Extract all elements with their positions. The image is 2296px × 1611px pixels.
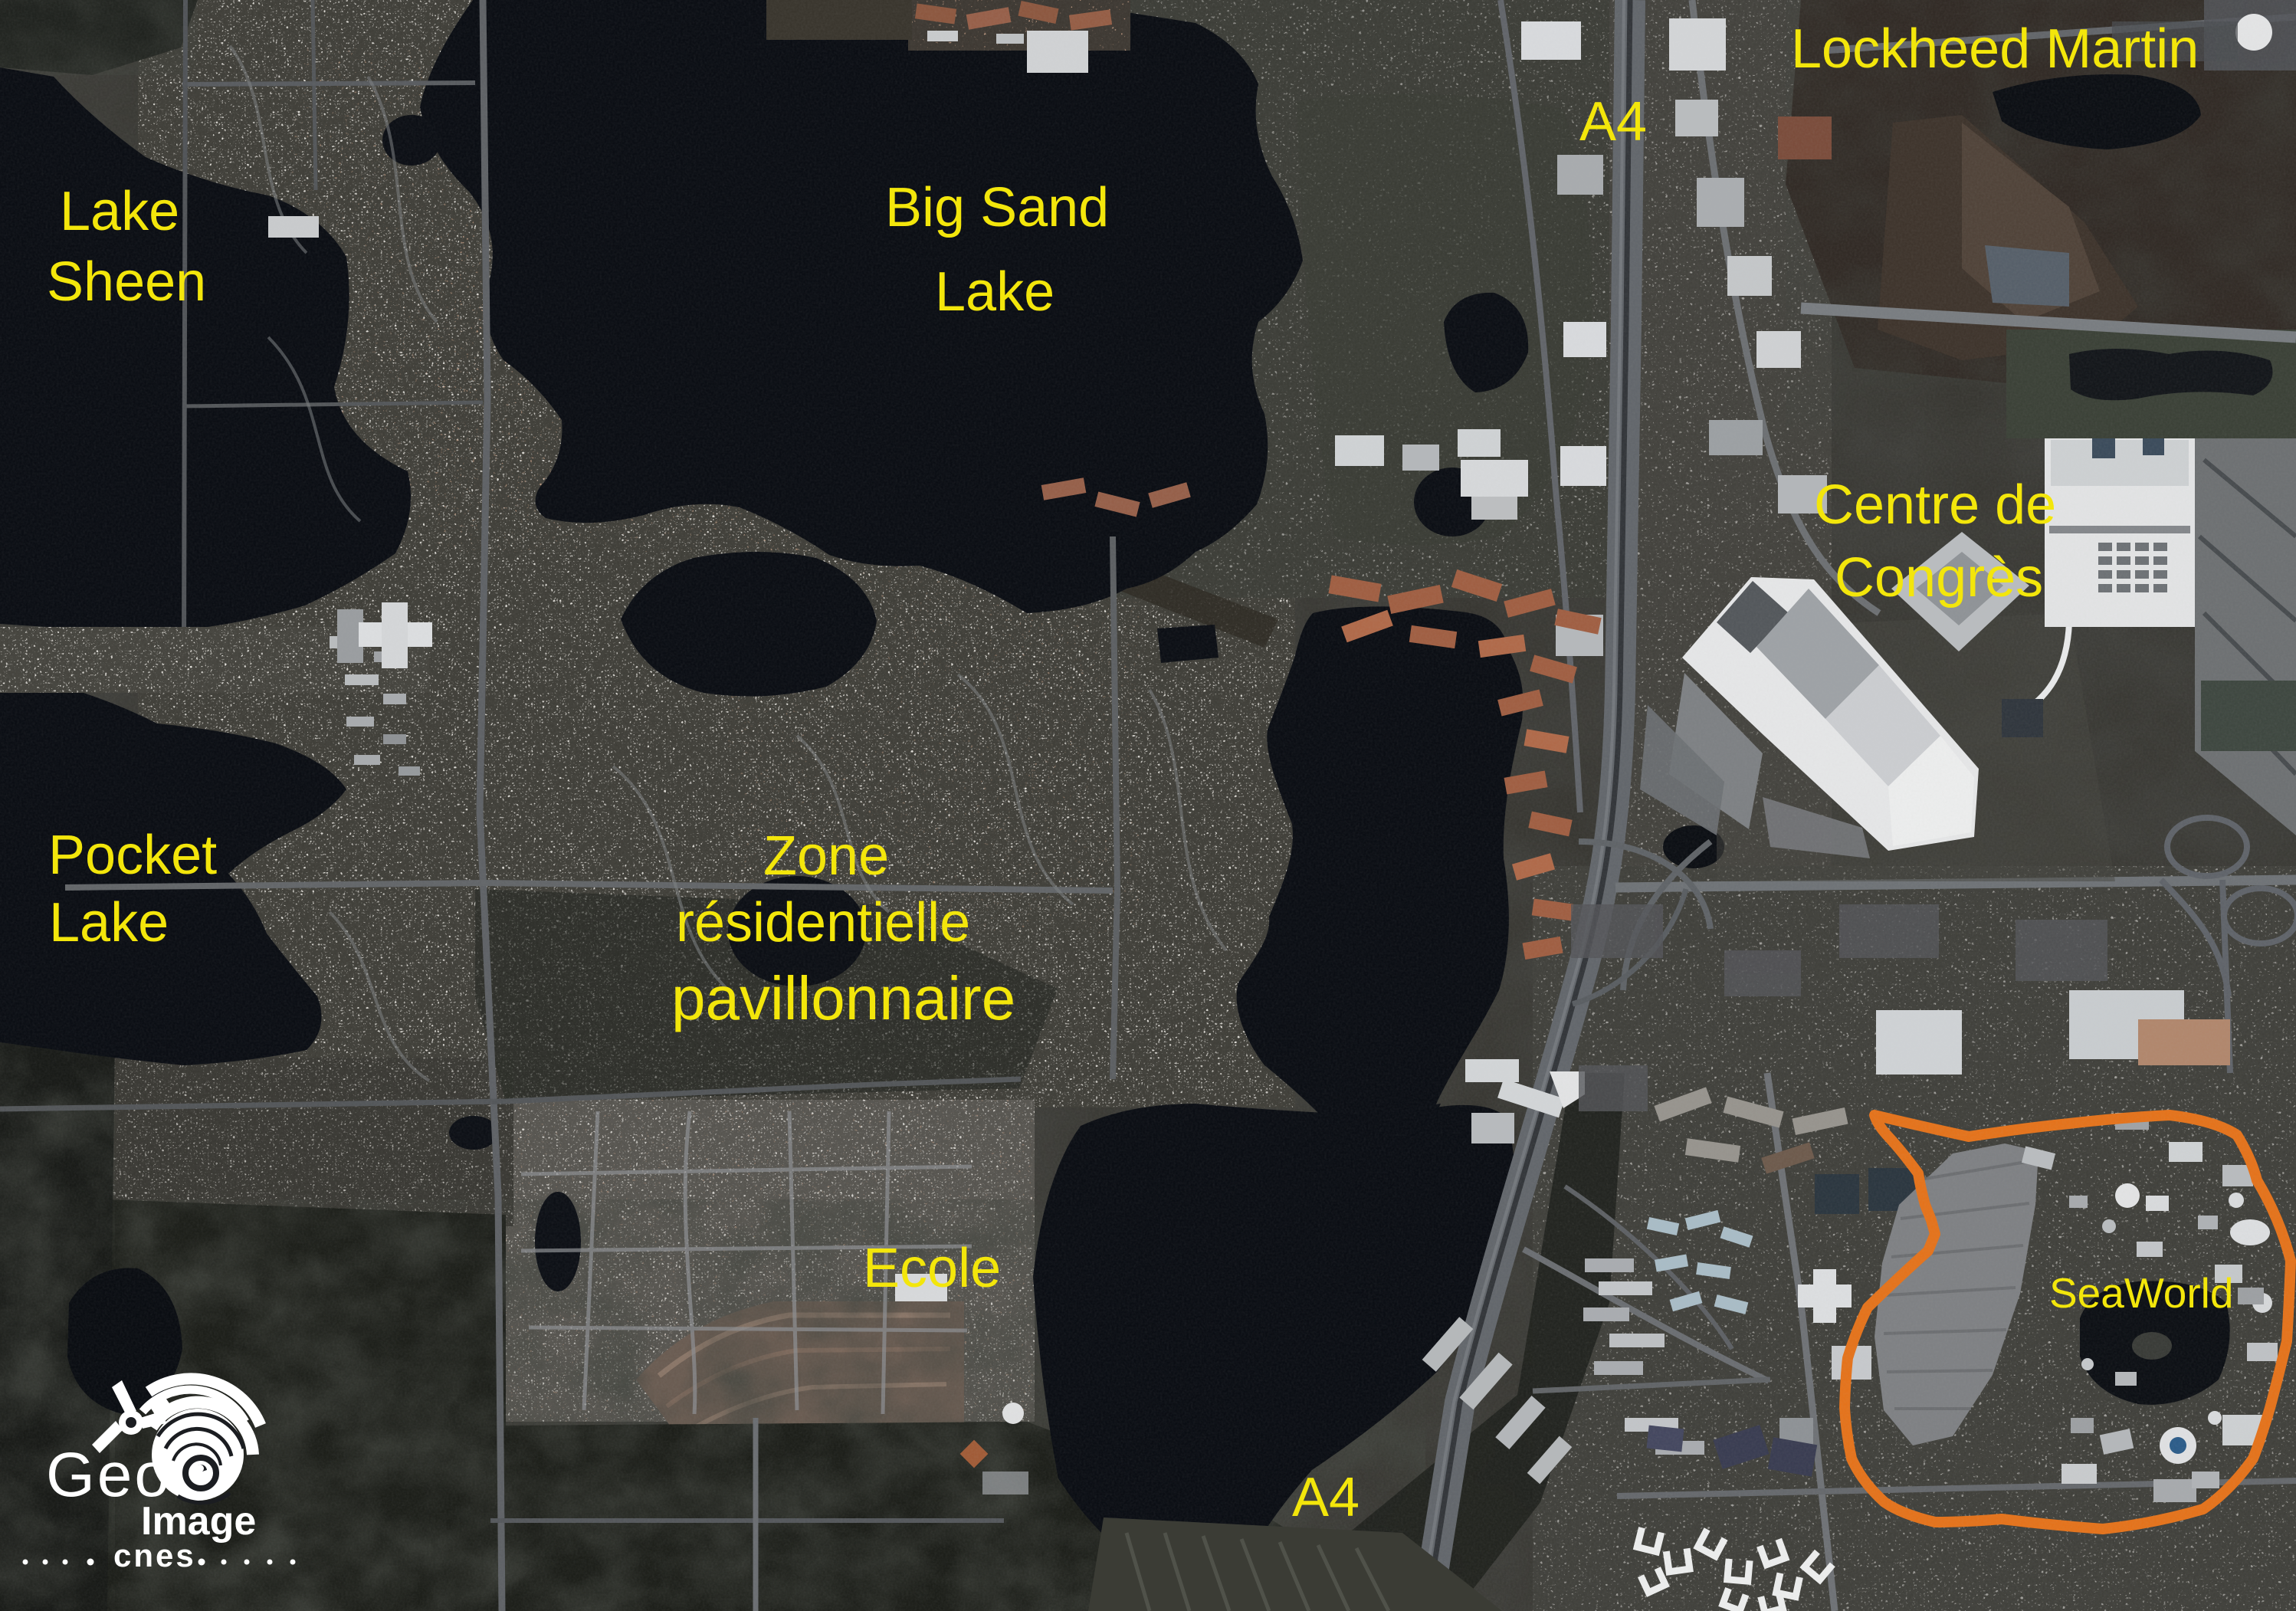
- svg-text:Ecole: Ecole: [863, 1238, 1001, 1299]
- svg-text:Sheen: Sheen: [47, 251, 206, 313]
- svg-text:Big Sand: Big Sand: [885, 177, 1109, 238]
- svg-text:Lake: Lake: [60, 181, 179, 242]
- svg-text:Pocket: Pocket: [48, 825, 217, 886]
- svg-text:A4: A4: [1579, 91, 1647, 153]
- svg-text:Centre de: Centre de: [1814, 474, 2056, 536]
- svg-text:SeaWorld: SeaWorld: [2049, 1269, 2234, 1317]
- svg-text:résidentielle: résidentielle: [676, 892, 970, 953]
- svg-text:Zone: Zone: [763, 825, 889, 887]
- svg-text:Congrès: Congrès: [1835, 547, 2043, 609]
- svg-text:A4: A4: [1292, 1467, 1360, 1528]
- svg-text:Lake: Lake: [49, 892, 169, 953]
- svg-text:Lockheed Martin: Lockheed Martin: [1791, 18, 2199, 80]
- svg-text:cnes: cnes: [113, 1537, 196, 1573]
- svg-text:pavillonnaire: pavillonnaire: [671, 964, 1015, 1032]
- svg-text:Lake: Lake: [935, 261, 1055, 323]
